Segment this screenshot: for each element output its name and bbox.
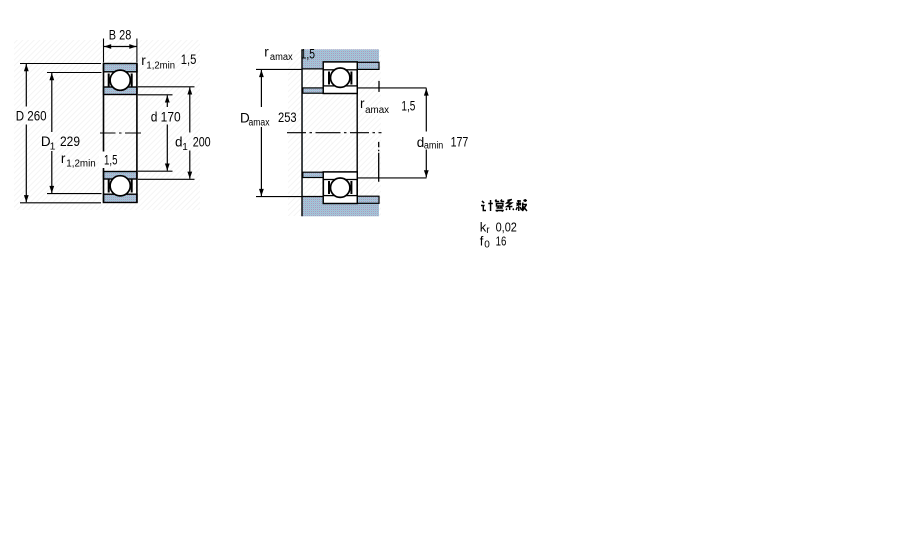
- svg-text:200: 200: [193, 134, 211, 149]
- svg-text:r: r: [61, 151, 66, 166]
- svg-text:B 28: B 28: [109, 28, 132, 43]
- svg-text:1,5: 1,5: [301, 47, 315, 62]
- svg-text:1,5: 1,5: [104, 152, 118, 167]
- svg-text:177: 177: [451, 135, 469, 150]
- svg-text:1: 1: [182, 142, 188, 153]
- svg-text:r: r: [486, 225, 490, 236]
- svg-text:0: 0: [484, 240, 490, 251]
- svg-text:0,02: 0,02: [496, 219, 517, 234]
- svg-text:253: 253: [278, 110, 297, 125]
- svg-text:1: 1: [50, 142, 56, 153]
- svg-text:1,5: 1,5: [181, 52, 197, 67]
- svg-text:229: 229: [60, 134, 80, 149]
- svg-text:1,2min: 1,2min: [66, 159, 95, 170]
- svg-text:d 170: d 170: [151, 109, 181, 124]
- svg-text:D 260: D 260: [16, 109, 47, 124]
- svg-text:r: r: [264, 45, 269, 60]
- svg-text:amin: amin: [424, 141, 443, 152]
- svg-text:amax: amax: [365, 105, 389, 116]
- svg-text:16: 16: [496, 234, 507, 249]
- svg-text:1,2min: 1,2min: [146, 61, 175, 72]
- svg-text:f: f: [480, 234, 484, 249]
- svg-text:1,5: 1,5: [401, 98, 415, 113]
- svg-text:amax: amax: [249, 117, 270, 128]
- svg-text:amax: amax: [270, 52, 293, 63]
